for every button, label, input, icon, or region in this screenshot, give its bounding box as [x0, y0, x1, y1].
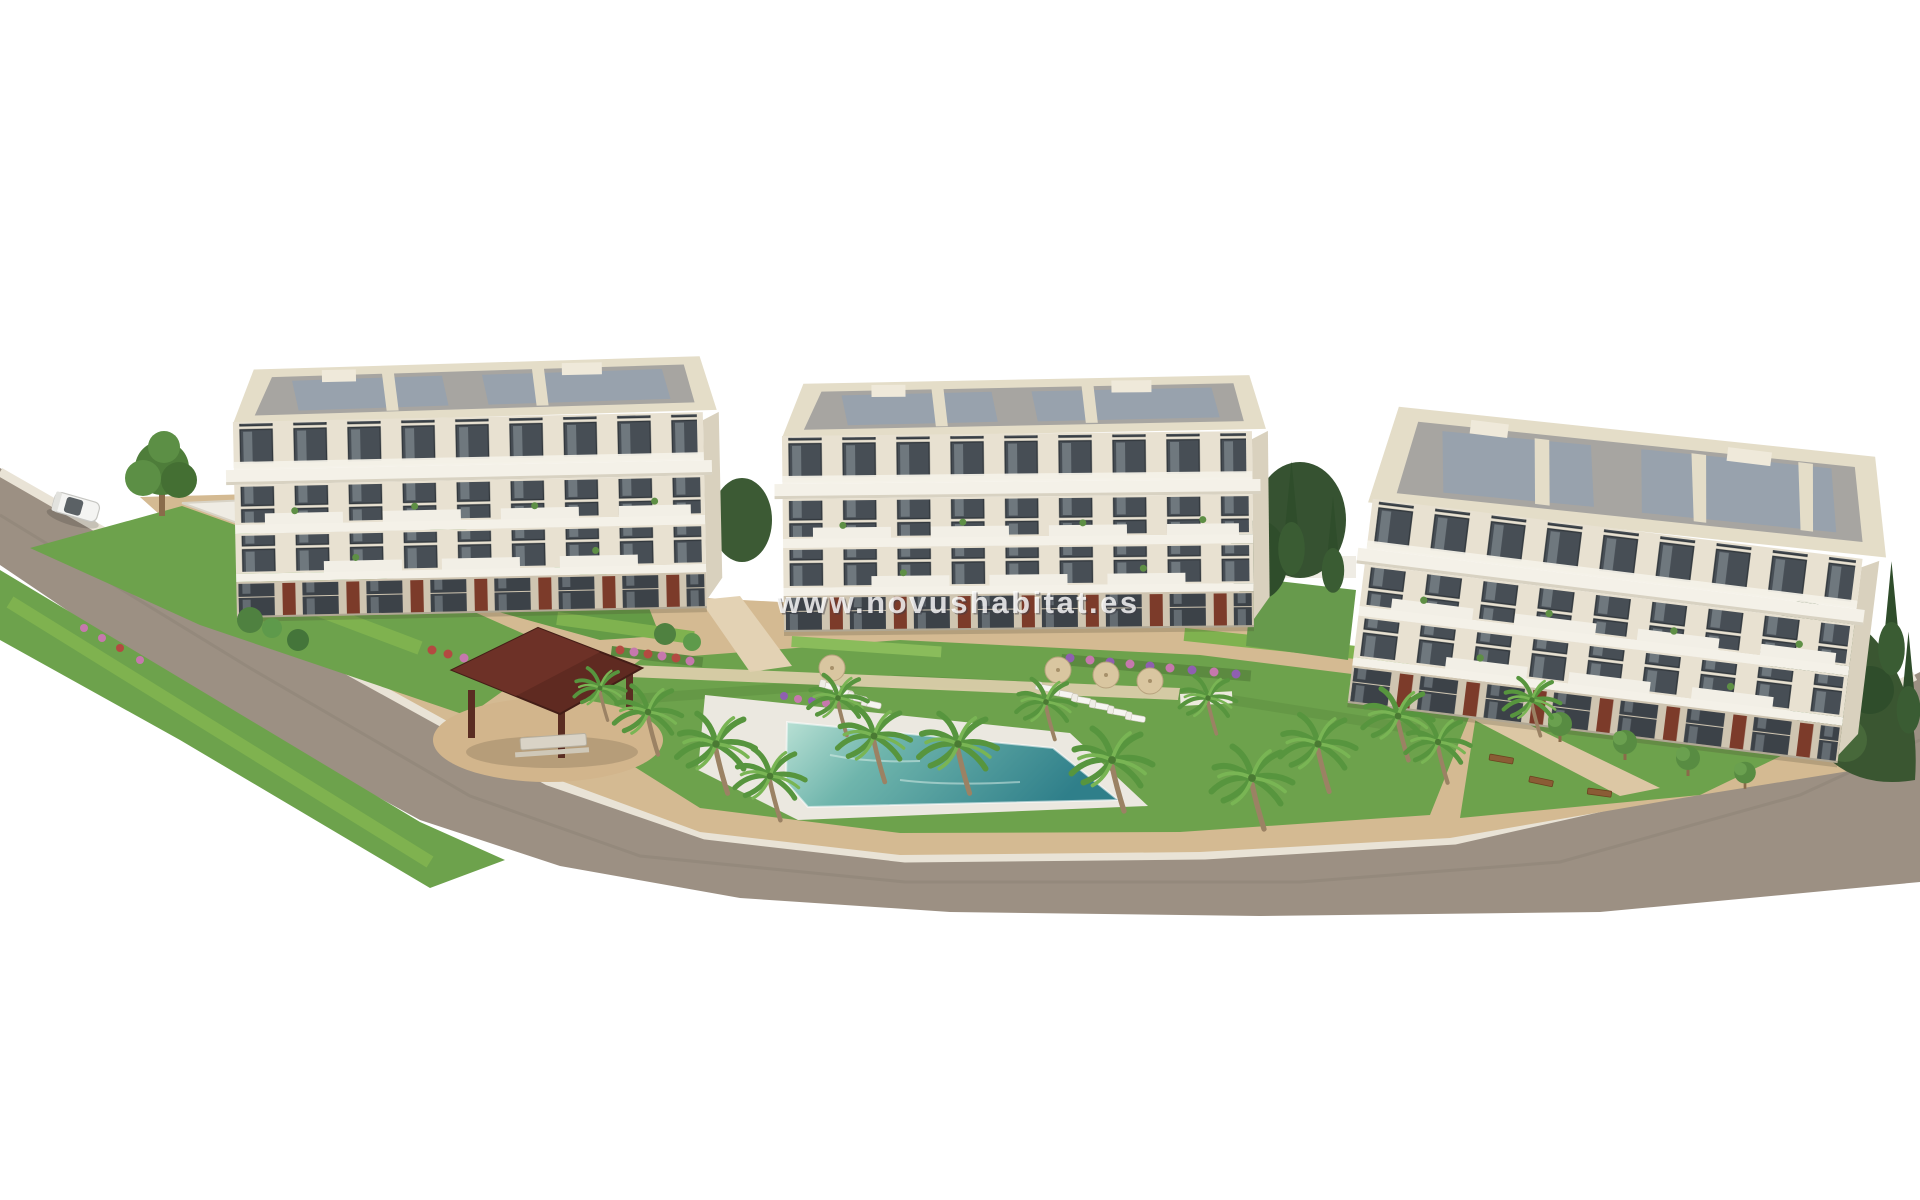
- building-1-facade: [225, 412, 723, 622]
- building-1: [224, 356, 723, 622]
- render-canvas: www.novushabitat.es www.novushabitat.es: [0, 0, 1920, 1200]
- parasol: [1045, 657, 1071, 683]
- parasol: [819, 655, 845, 681]
- watermark-text: www.novushabitat.es: [775, 585, 1139, 620]
- architectural-render: www.novushabitat.es www.novushabitat.es: [0, 0, 1920, 1200]
- parasol: [1137, 668, 1163, 694]
- gazebo-post: [468, 690, 475, 738]
- watermark: www.novushabitat.es www.novushabitat.es: [775, 585, 1141, 622]
- parasol: [1093, 662, 1119, 688]
- building-2-roof: [781, 375, 1266, 438]
